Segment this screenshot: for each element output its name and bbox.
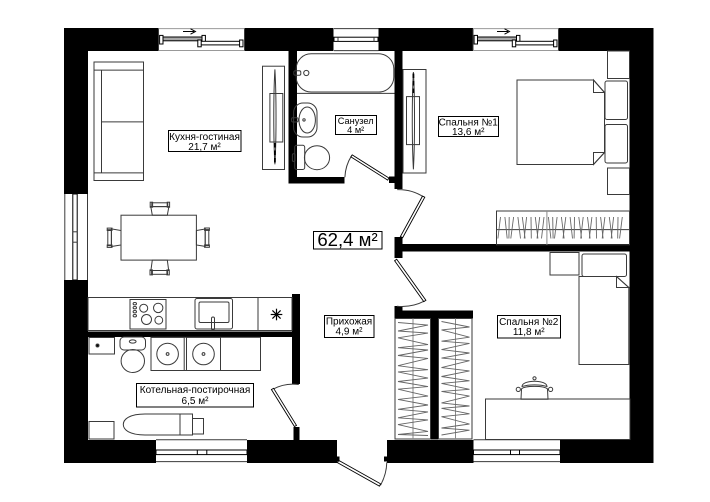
svg-text:62,4 м²: 62,4 м² bbox=[317, 229, 377, 250]
svg-text:11,8 м²: 11,8 м² bbox=[513, 327, 545, 338]
svg-text:4 м²: 4 м² bbox=[347, 125, 364, 135]
svg-text:Котельная-постирочная: Котельная-постирочная bbox=[140, 385, 251, 396]
svg-text:6,5 м²: 6,5 м² bbox=[182, 396, 210, 407]
svg-text:21,7 м²: 21,7 м² bbox=[188, 142, 221, 153]
svg-text:13,6 м²: 13,6 м² bbox=[452, 127, 485, 138]
svg-text:4,9 м²: 4,9 м² bbox=[336, 326, 364, 337]
